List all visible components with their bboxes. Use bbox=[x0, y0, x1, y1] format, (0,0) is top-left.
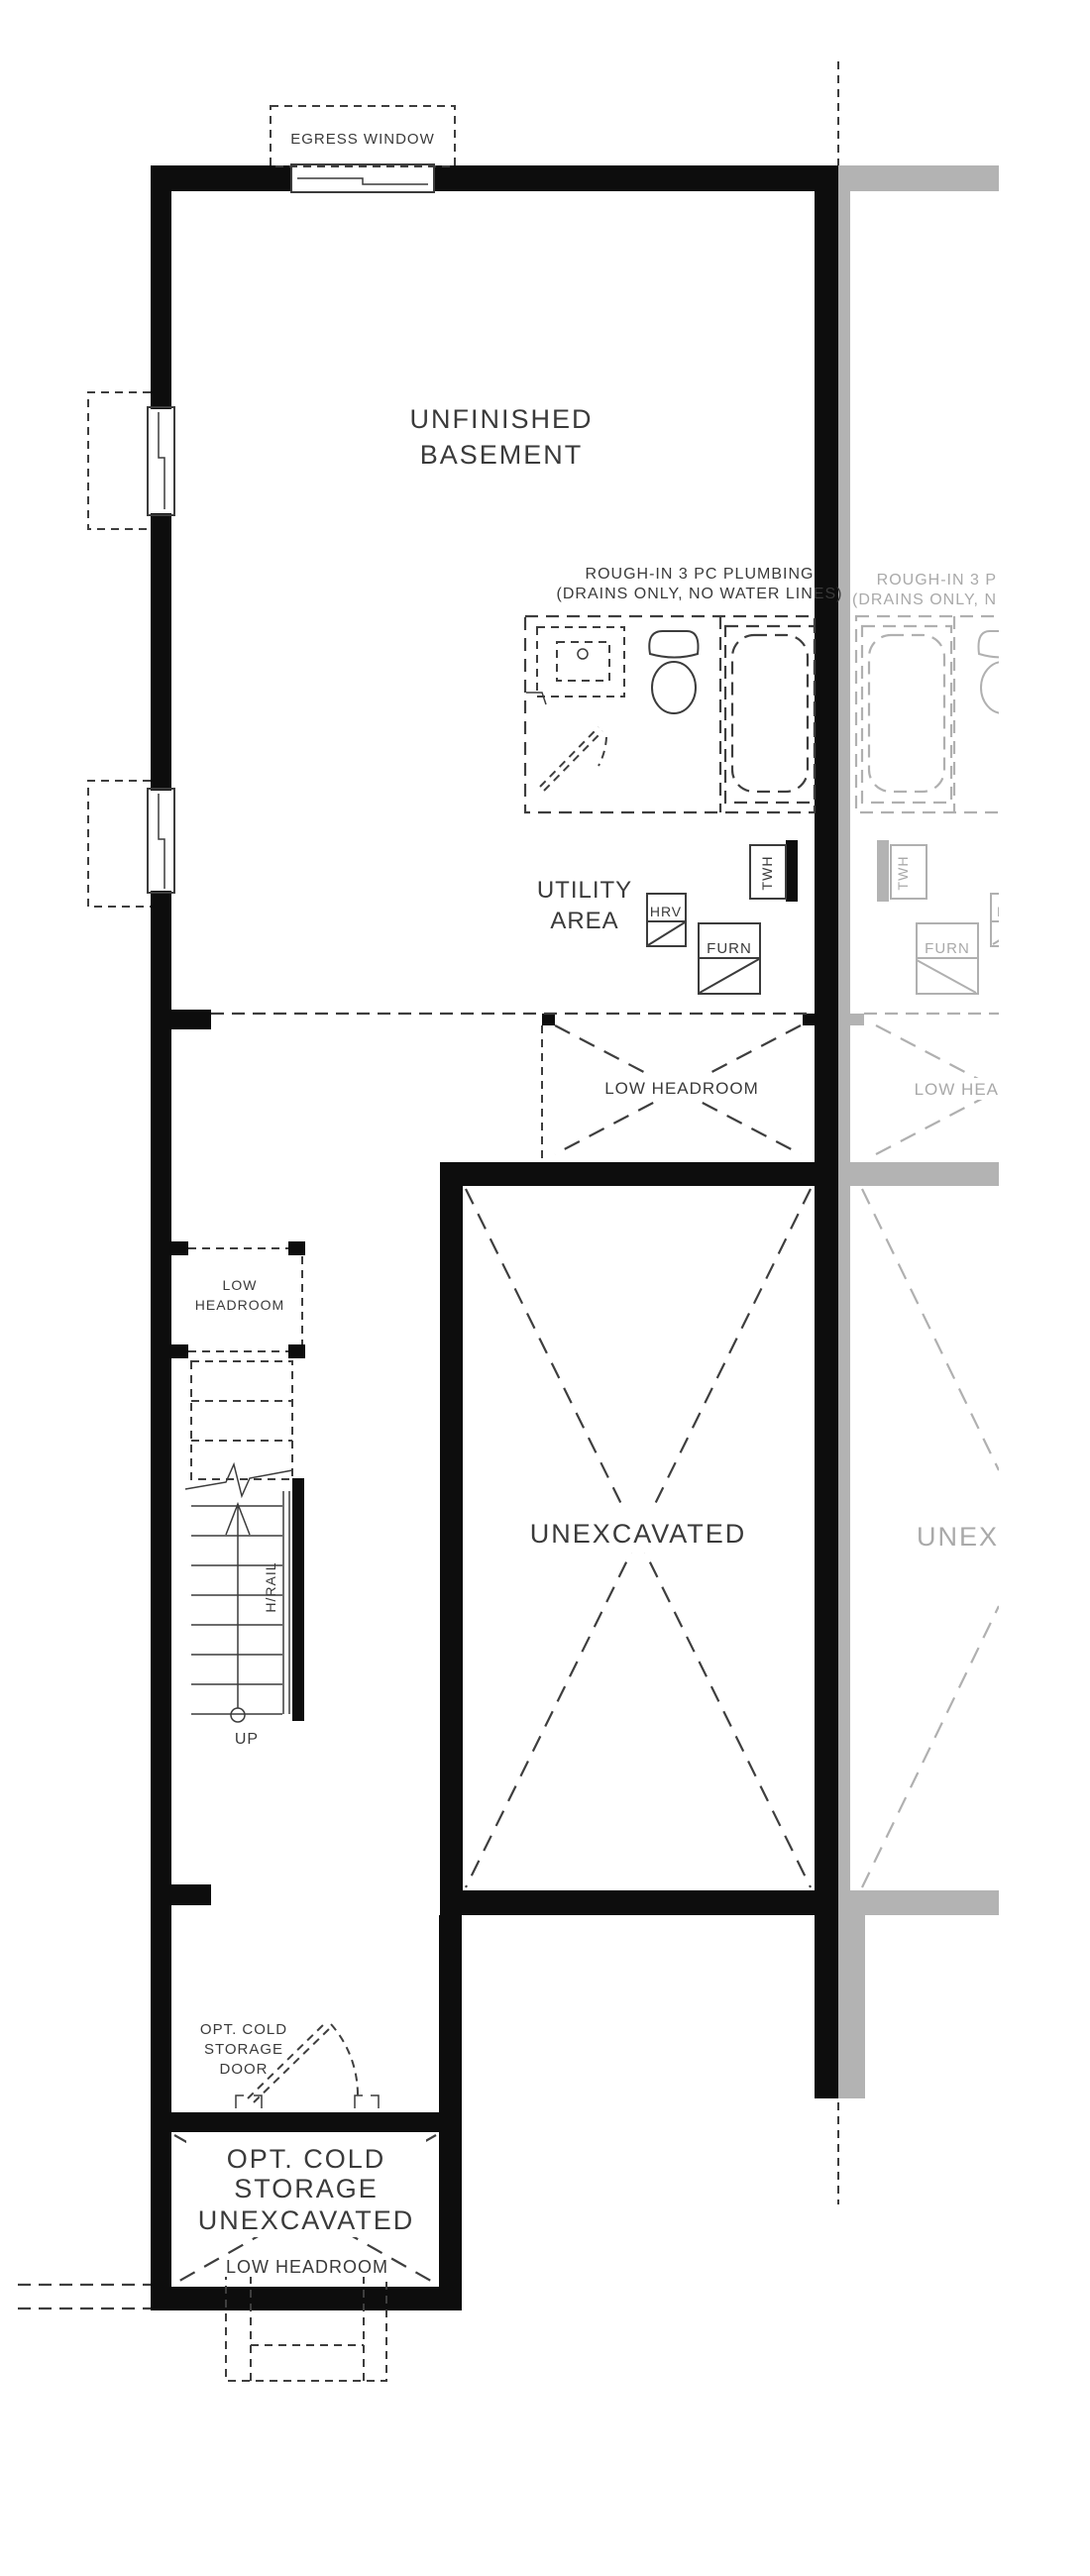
plumbing-note-line1: ROUGH-IN 3 PC PLUMBING bbox=[586, 566, 815, 583]
cold-door-label-line3: DOOR bbox=[220, 2061, 269, 2078]
adjacent-furnace-lines bbox=[917, 958, 978, 993]
adjacent-bottom-wall bbox=[838, 1890, 999, 1915]
low-headroom-label: LOW HEADROOM bbox=[604, 1079, 759, 1098]
toilet-bowl bbox=[652, 662, 696, 713]
left-window-1-sash bbox=[159, 412, 164, 509]
adjacent-tub bbox=[869, 635, 944, 792]
stair-landing-treads bbox=[191, 1401, 292, 1441]
cold-storage-label-line3: UNEXCAVATED bbox=[198, 2205, 415, 2235]
left-window-2-frame bbox=[148, 789, 174, 893]
party-wall bbox=[815, 191, 838, 2098]
left-wall-lower bbox=[151, 891, 171, 2310]
adjacent-tub-outline bbox=[862, 626, 951, 803]
adjacent-party-wall-lower bbox=[838, 1915, 865, 2098]
top-wall-left bbox=[151, 165, 292, 191]
cold-door-label-line2: STORAGE bbox=[204, 2041, 283, 2058]
room-label-line1: UNFINISHED bbox=[409, 404, 593, 434]
stair-low-headroom-line1: LOW bbox=[223, 1277, 258, 1293]
cold-storage-door-swing bbox=[331, 2024, 358, 2096]
tub-outline bbox=[725, 626, 815, 803]
utility-box-corner-left bbox=[542, 1014, 555, 1025]
adjacent-furnace-label: FURN bbox=[925, 940, 970, 957]
adjacent-toilet-bowl bbox=[981, 662, 1025, 713]
furnace-lines bbox=[699, 958, 760, 993]
adjacent-plumbing-note-line1: ROUGH-IN 3 P bbox=[877, 572, 997, 589]
stair-box-corner-tr bbox=[288, 1241, 305, 1255]
adjacent-hrv-box bbox=[991, 894, 1030, 946]
adjacent-plumbing-note-line2: (DRAINS ONLY, N bbox=[852, 591, 997, 608]
adjacent-party-wall bbox=[838, 191, 850, 1915]
utility-box-corner-right bbox=[803, 1014, 816, 1025]
unexcavated-top-wall bbox=[440, 1162, 838, 1186]
cold-storage-label-line1: OPT. COLD bbox=[227, 2144, 386, 2174]
cold-storage-top-wall bbox=[151, 2112, 439, 2132]
adjacent-bathroom-outline bbox=[856, 616, 1090, 812]
hrv-lines bbox=[647, 921, 686, 945]
cold-storage-label-line2: STORAGE bbox=[234, 2174, 379, 2203]
stair-arrow-origin bbox=[231, 1708, 245, 1722]
utility-label-line2: AREA bbox=[550, 908, 618, 934]
adjacent-hrv-lines bbox=[991, 921, 1030, 944]
floor-plan-drawing: ROUGH-IN 3 P (DRAINS ONLY, N TWH FURN HR… bbox=[0, 0, 1090, 2576]
adjacent-hrv-label: HRV bbox=[997, 904, 1029, 919]
cold-door-label-line1: OPT. COLD bbox=[200, 2021, 287, 2038]
adjacent-low-headroom-label: LOW HEA bbox=[915, 1080, 999, 1099]
twh-label: TWH bbox=[759, 856, 775, 891]
footing-extension-lines bbox=[18, 2285, 151, 2308]
bathroom-outline bbox=[525, 616, 815, 812]
unexcavated-left-wall bbox=[440, 1162, 463, 1915]
adjacent-unit: ROUGH-IN 3 P (DRAINS ONLY, N TWH FURN HR… bbox=[838, 165, 1090, 2098]
stair-low-headroom-line2: HEADROOM bbox=[195, 1297, 284, 1313]
stair-side-wall bbox=[292, 1478, 304, 1721]
utility-wall-stub bbox=[171, 1010, 211, 1029]
adjacent-twh-wall-block bbox=[877, 840, 889, 902]
adjacent-utility-corner-mark bbox=[850, 1014, 864, 1025]
utility-label-line1: UTILITY bbox=[537, 877, 632, 904]
adjacent-unexcavated-label: UNEX bbox=[917, 1522, 999, 1552]
unexcavated-label: UNEXCAVATED bbox=[530, 1519, 747, 1549]
toilet-tank bbox=[649, 631, 698, 658]
left-window-1-frame bbox=[148, 407, 174, 515]
room-label-line2: BASEMENT bbox=[420, 440, 584, 470]
stair-box-corner-bl bbox=[171, 1344, 188, 1358]
corridor-wall-stub bbox=[171, 1884, 211, 1905]
unexcavated-bottom-wall bbox=[440, 1890, 838, 1915]
cold-storage-door-jambs bbox=[236, 2095, 379, 2108]
egress-window-sash bbox=[297, 178, 428, 184]
adjacent-toilet-tank bbox=[979, 631, 1028, 658]
sink-drain bbox=[578, 649, 588, 659]
sink-basin bbox=[557, 642, 609, 681]
left-wall-upper bbox=[151, 191, 171, 409]
adjacent-twh-label: TWH bbox=[895, 856, 911, 891]
sink-corner-notch bbox=[526, 693, 546, 704]
cold-storage-bottom-wall bbox=[151, 2287, 462, 2310]
hrv-label: HRV bbox=[650, 904, 682, 919]
floor-plan: ROUGH-IN 3 P (DRAINS ONLY, N TWH FURN HR… bbox=[0, 0, 1090, 2576]
egress-window-label: EGRESS WINDOW bbox=[290, 131, 435, 148]
bath-door-swing bbox=[599, 737, 606, 766]
handrail-label: H/RAIL bbox=[263, 1561, 278, 1612]
stair-box-corner-br bbox=[288, 1344, 305, 1358]
window-well-1 bbox=[88, 392, 151, 529]
twh-wall-block bbox=[786, 840, 798, 902]
tub bbox=[732, 635, 808, 792]
left-wall-mid bbox=[151, 513, 171, 791]
window-well-2 bbox=[88, 781, 151, 907]
stair-direction-arrow bbox=[226, 1504, 250, 1708]
stair-landing-box bbox=[191, 1361, 292, 1479]
main-unit: EGRESS WINDOW UNFINISHED BASEMENT ROUGH-… bbox=[18, 106, 842, 2381]
furnace-label: FURN bbox=[707, 940, 752, 957]
adjacent-mid-wall bbox=[850, 1162, 999, 1186]
stair-box-corner-tl bbox=[171, 1241, 188, 1255]
left-window-2-sash bbox=[159, 794, 164, 889]
cold-low-headroom-label: LOW HEADROOM bbox=[226, 2257, 388, 2277]
handrail bbox=[283, 1491, 289, 1714]
top-wall-right bbox=[433, 165, 838, 191]
adjacent-top-wall bbox=[838, 165, 999, 191]
cold-storage-right-wall bbox=[439, 1915, 462, 2310]
hrv-box bbox=[647, 894, 686, 946]
up-label: UP bbox=[235, 1731, 259, 1748]
plumbing-note-line2: (DRAINS ONLY, NO WATER LINES) bbox=[557, 586, 843, 602]
bath-door-leaf bbox=[540, 727, 602, 791]
sink-counter-outline bbox=[537, 627, 624, 697]
